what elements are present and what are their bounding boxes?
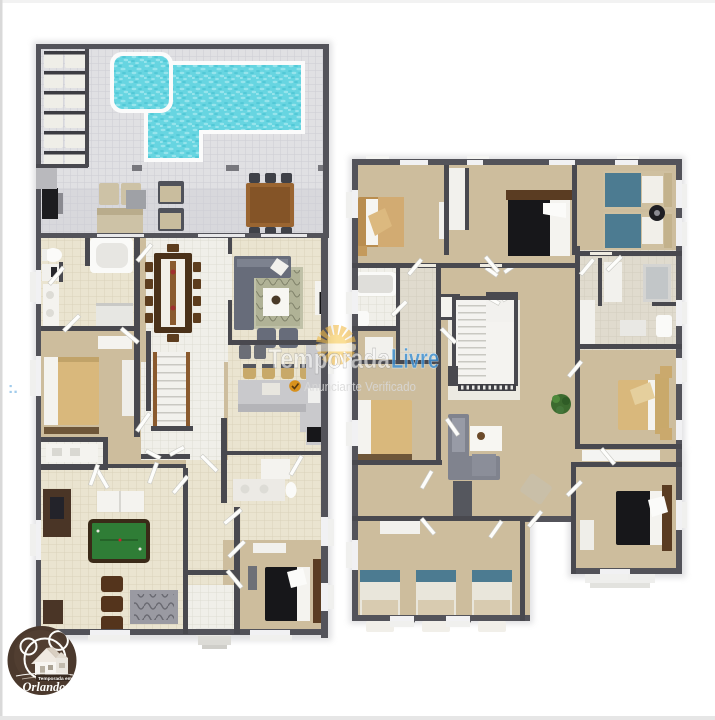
svg-text:Anunciante Verificado: Anunciante Verificado (304, 380, 416, 394)
svg-text::.: :. (8, 380, 18, 397)
svg-text:Temporada: Temporada (268, 343, 390, 374)
svg-text:Livre: Livre (391, 343, 439, 374)
